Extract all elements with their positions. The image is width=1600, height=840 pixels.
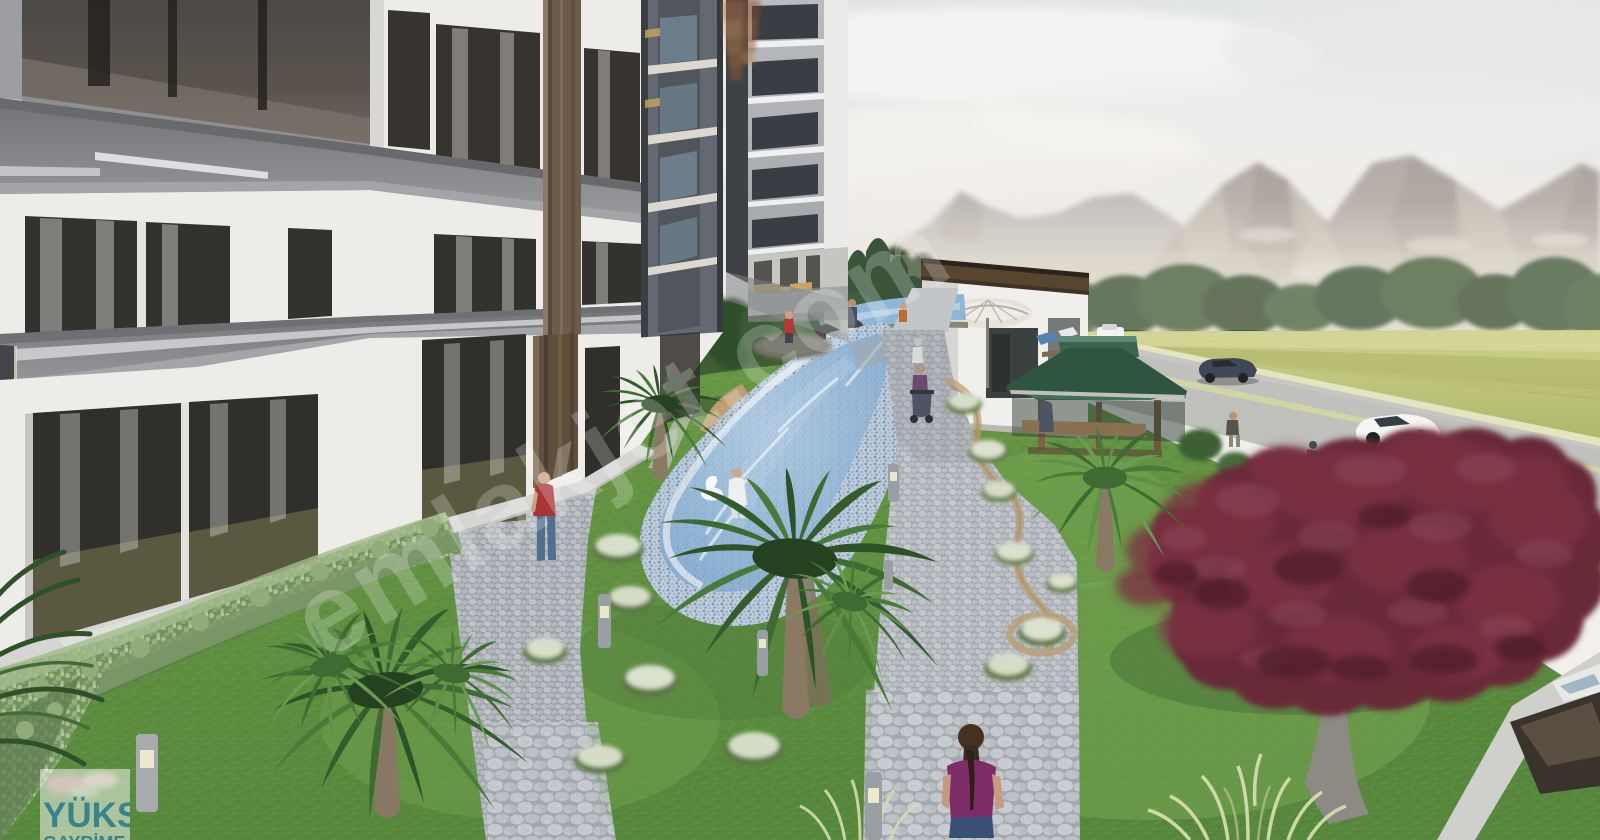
svg-text:GAYRİME: GAYRİME: [43, 833, 125, 840]
svg-text:YÜKS: YÜKS: [43, 796, 140, 835]
